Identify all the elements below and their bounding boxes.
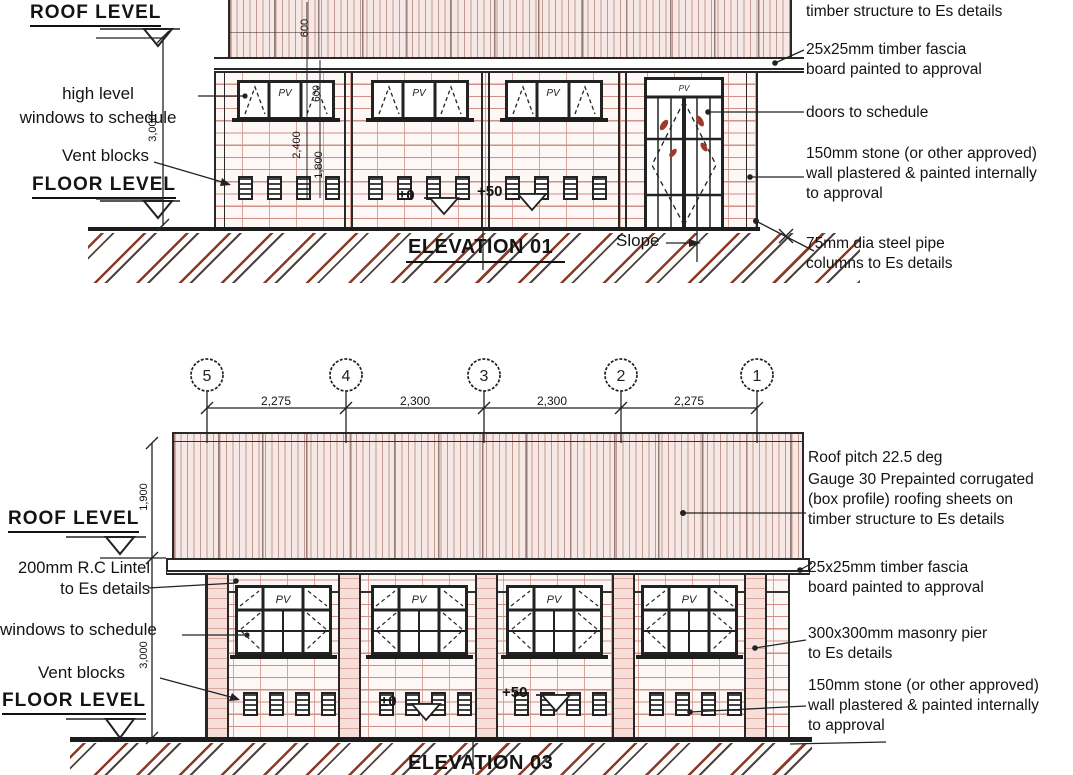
elev03-leader-lines: [0, 350, 1073, 775]
architectural-elevation-drawing: PV PV PV PV: [0, 0, 1073, 775]
elev01-leader-lines: [0, 0, 1073, 300]
